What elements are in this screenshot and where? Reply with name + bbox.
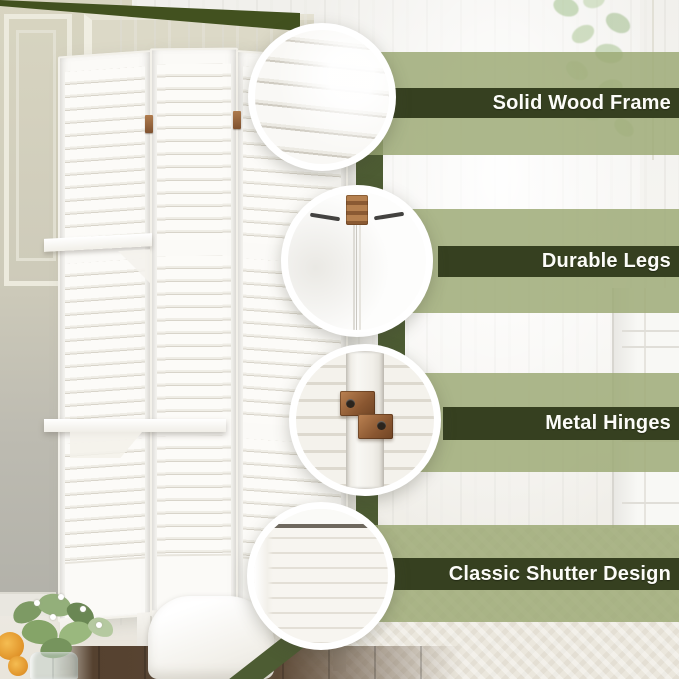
feature-label: Solid Wood Frame: [493, 92, 671, 115]
flower-bouquet: [0, 592, 130, 679]
feature-band-classic-shutter-design: Classic Shutter Design: [360, 558, 679, 590]
copper-hinge-icon: [346, 195, 368, 225]
shutter-slats-closeup-icon: [247, 502, 395, 650]
louver-section: [157, 64, 231, 241]
glass-vase: [30, 652, 78, 679]
frame-top-rail: [254, 509, 388, 524]
frame-edge-line: [359, 211, 361, 330]
louver-section: [157, 256, 231, 421]
cabinet-panel-line: [622, 330, 679, 332]
feature-label: Metal Hinges: [545, 412, 671, 435]
product-feature-infographic: Solid Wood Frame Durable Legs Metal Hing…: [0, 0, 679, 679]
feature-band-metal-hinges: Metal Hinges: [443, 407, 679, 440]
divider-panel-middle: [150, 48, 238, 617]
fold-hinge-icon: [145, 115, 153, 133]
copper-hinge-plate-icon: [358, 414, 393, 439]
cabinet-panel-line: [622, 346, 679, 348]
feature-label: Durable Legs: [542, 250, 671, 273]
panel-frame-corner-closeup-icon: [281, 185, 433, 337]
copper-hinge-plate-icon: [340, 391, 375, 416]
cabinet-panel-line: [622, 502, 679, 504]
slats-horizontal-texture: [254, 509, 388, 643]
frame-edge-line: [353, 211, 355, 330]
panel-rail: [157, 240, 231, 257]
frame-left-stile: [254, 509, 273, 643]
louvered-slats-closeup-icon: [248, 23, 396, 171]
hinge-screw: [377, 421, 386, 430]
copper-hinge-closeup-icon: [289, 344, 441, 496]
corner-shelf-lower: [44, 419, 226, 432]
hinge-screw: [346, 399, 355, 408]
louver-section: [157, 436, 231, 555]
marigold-flower: [8, 656, 28, 676]
frame-shadow-line: [259, 524, 388, 528]
feature-band-durable-legs: Durable Legs: [438, 246, 679, 277]
slats-diagonal-texture: [255, 30, 389, 164]
feature-label: Classic Shutter Design: [449, 563, 671, 586]
divider-panel-left: [58, 50, 152, 623]
wall-molding-inner: [16, 30, 56, 261]
fold-hinge-icon: [233, 111, 241, 129]
louver-section: [65, 66, 145, 248]
louver-section: [65, 258, 145, 428]
